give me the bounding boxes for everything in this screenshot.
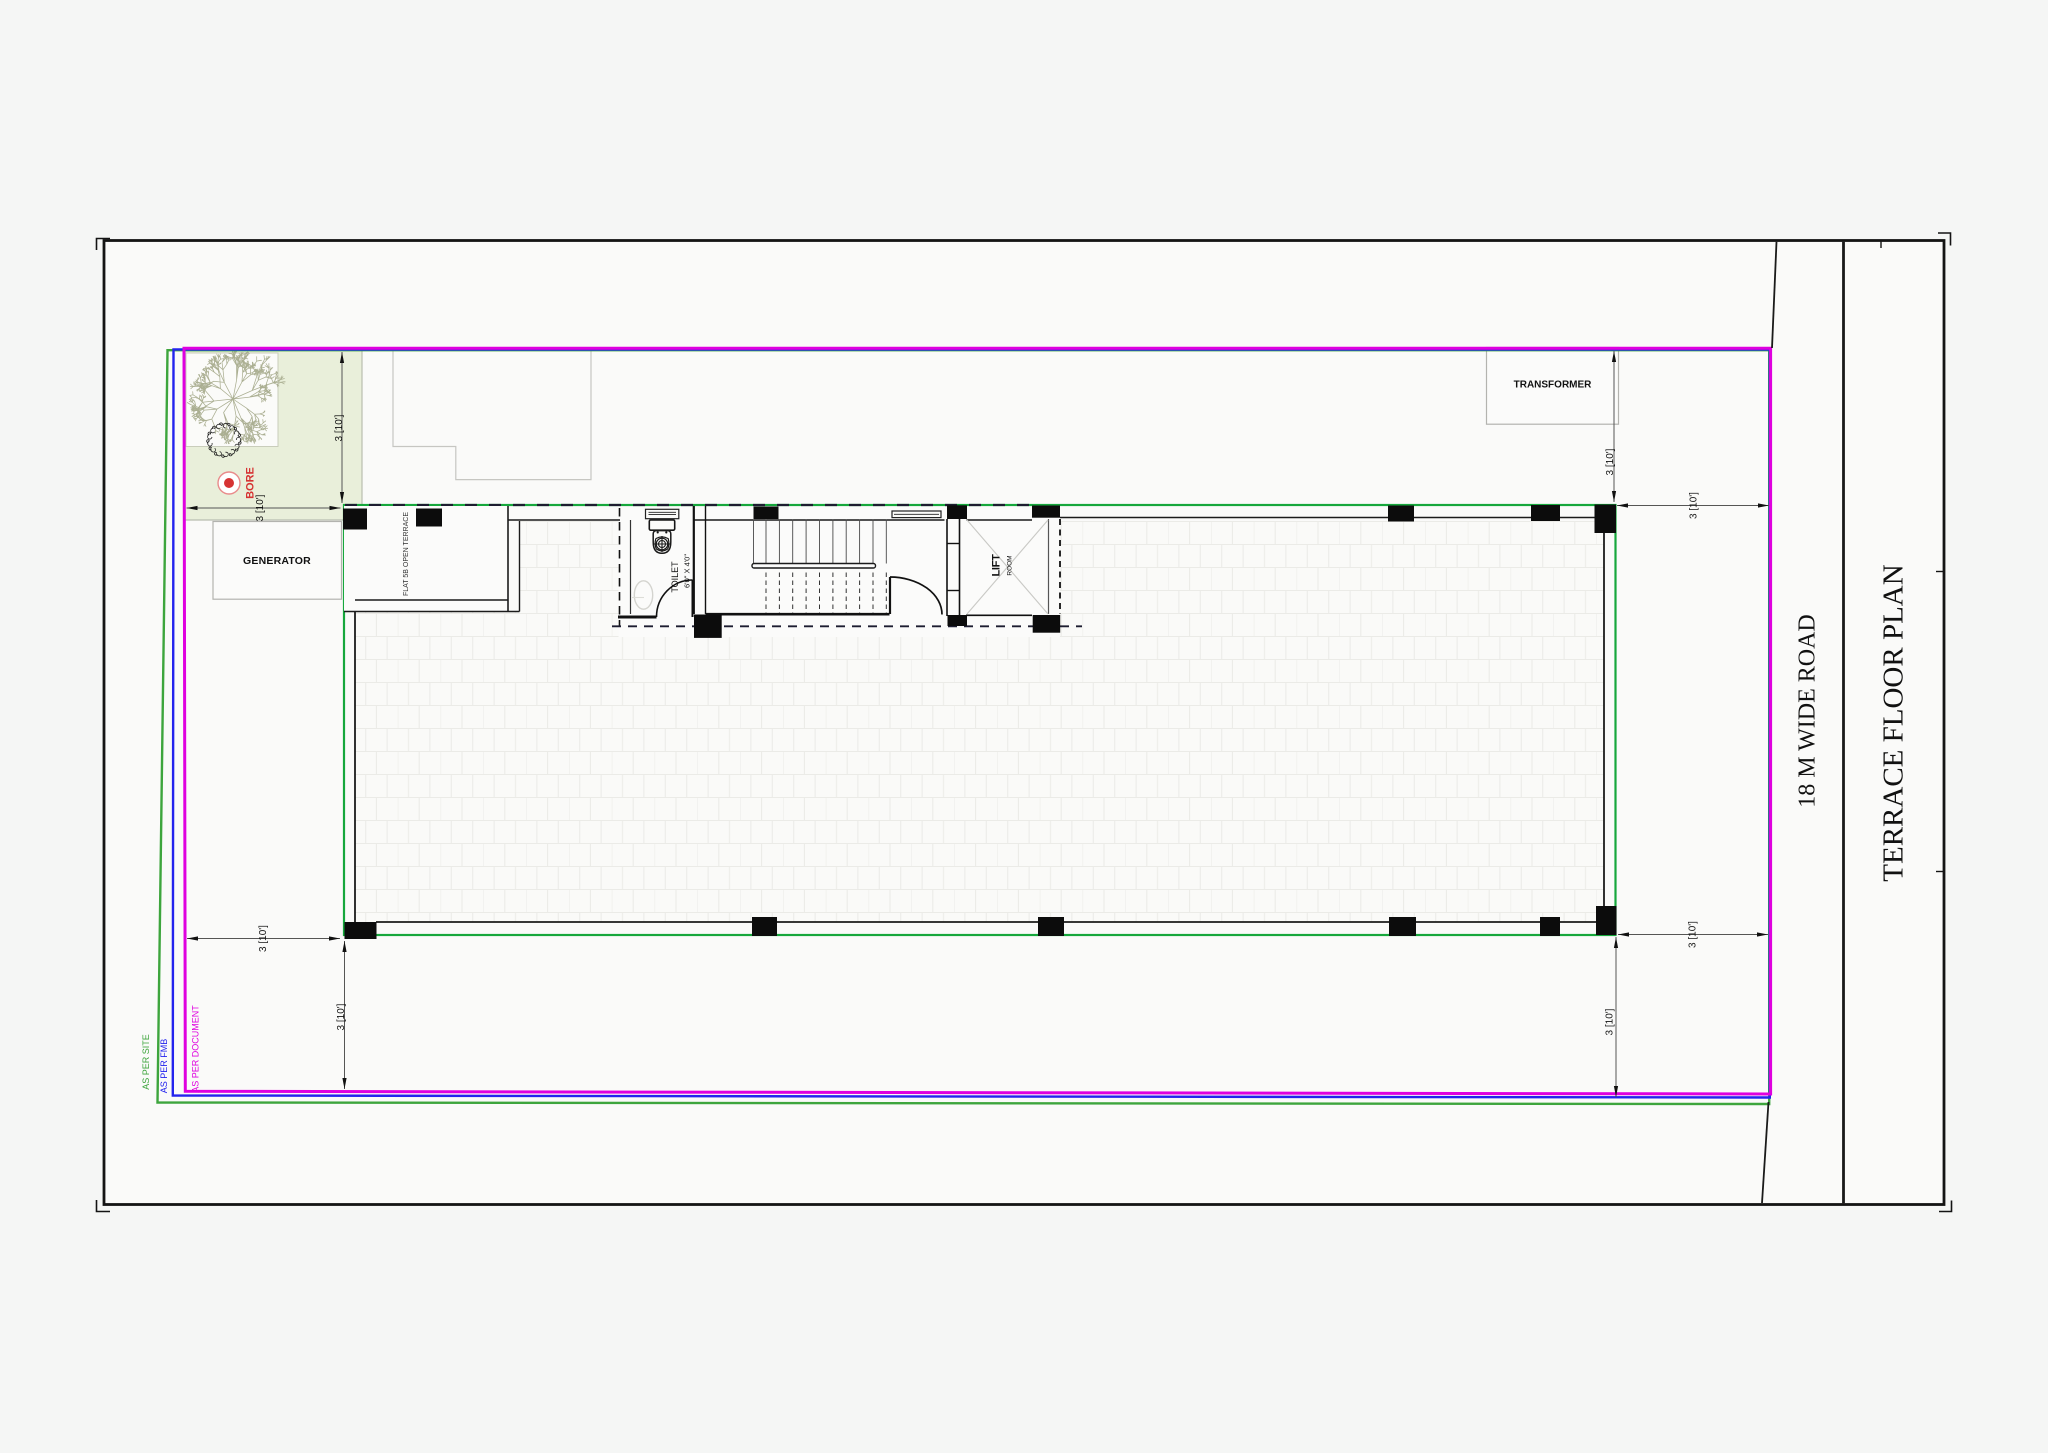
svg-text:FLAT 5B OPEN TERRACE: FLAT 5B OPEN TERRACE xyxy=(403,512,410,596)
svg-text:18 M WIDE ROAD: 18 M WIDE ROAD xyxy=(1795,614,1821,808)
svg-text:LIFT: LIFT xyxy=(990,554,1002,577)
svg-text:3 [10']: 3 [10'] xyxy=(336,1003,347,1030)
svg-text:GENERATOR: GENERATOR xyxy=(243,555,311,567)
svg-text:3 [10']: 3 [10'] xyxy=(1605,448,1616,475)
svg-text:3 [10']: 3 [10'] xyxy=(334,414,345,441)
svg-text:3 [10']: 3 [10'] xyxy=(255,494,266,521)
svg-text:6'0" X 4'0": 6'0" X 4'0" xyxy=(682,554,691,588)
svg-text:TERRACE FLOOR PLAN: TERRACE FLOOR PLAN xyxy=(1878,564,1910,881)
svg-text:ROOM: ROOM xyxy=(1007,555,1014,575)
svg-text:3 [10']: 3 [10'] xyxy=(1689,492,1700,519)
svg-text:AS PER DOCUMENT: AS PER DOCUMENT xyxy=(190,1005,200,1093)
svg-text:TRANSFORMER: TRANSFORMER xyxy=(1514,380,1593,391)
svg-text:3 [10']: 3 [10'] xyxy=(1605,1008,1616,1035)
svg-text:TOILET: TOILET xyxy=(670,561,680,593)
svg-text:3 [10']: 3 [10'] xyxy=(258,925,269,952)
svg-text:AS PER SITE: AS PER SITE xyxy=(141,1034,151,1090)
svg-text:AS PER FMB: AS PER FMB xyxy=(159,1039,169,1094)
svg-text:BORE: BORE xyxy=(244,467,256,499)
svg-text:3 [10']: 3 [10'] xyxy=(1688,921,1699,948)
